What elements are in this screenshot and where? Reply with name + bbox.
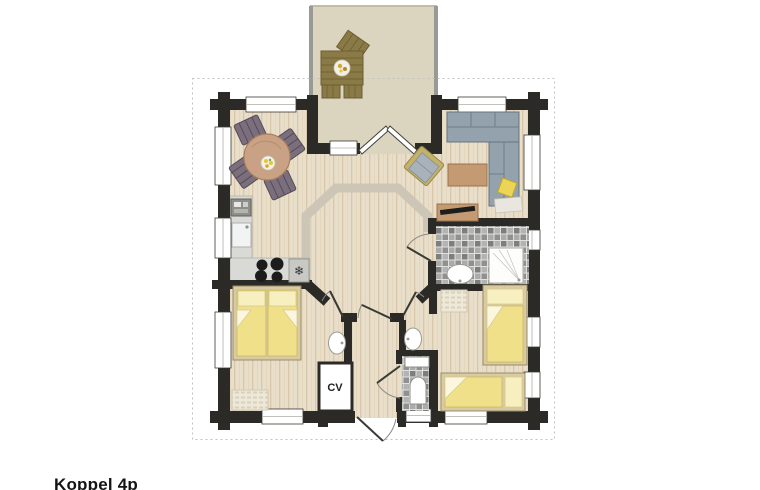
washbasin-bathroom [447, 265, 473, 284]
oven-icon [231, 199, 251, 216]
window-dining-left [215, 127, 231, 185]
terrace-chair-south-right [344, 85, 362, 98]
single-bed-vertical [483, 285, 527, 365]
terrace-rail-left [309, 6, 313, 99]
table-flowers [261, 156, 275, 170]
washbasin-bedroom1 [329, 332, 346, 354]
window-living-right [524, 135, 540, 190]
terrace-rail-right [434, 6, 438, 99]
floorplan-drawing: CV ❄ [0, 0, 760, 490]
plan-caption: Koppel 4p [54, 475, 138, 490]
washbasin-bedroom2 [405, 328, 422, 350]
cv-label: CV [327, 382, 343, 394]
single-bed-horizontal [441, 373, 525, 411]
double-bed [233, 286, 301, 360]
bathroom [436, 226, 529, 284]
shower [489, 248, 523, 283]
door-back-entrance [357, 417, 396, 441]
toilet-room [402, 356, 429, 411]
toilet-cistern [405, 357, 429, 367]
fridge: ❄ [289, 259, 309, 282]
terrace-chair-south-left [322, 85, 340, 98]
sofa-blanket [494, 197, 522, 213]
kitchen-sink [232, 223, 251, 247]
window-kitchen-left [215, 218, 231, 258]
toilet-bowl [410, 377, 426, 404]
window-entrance-front [330, 141, 357, 155]
window-bedroom1-bottom [262, 409, 303, 424]
window-bedroom2-right-lower [524, 372, 540, 398]
cv-closet: CV [319, 363, 352, 411]
window-bedroom1-left [215, 312, 231, 368]
terrace-table-plate [334, 60, 350, 76]
rug-bedroom1 [232, 390, 268, 410]
terrace-table [321, 51, 363, 85]
coffee-table [448, 164, 487, 186]
window-dining-top [246, 97, 296, 112]
rug-bedroom2 [441, 290, 467, 312]
window-living-top [458, 97, 506, 112]
tv-sideboard [437, 204, 478, 221]
floorplan-page: CV ❄ [0, 0, 760, 490]
snowflake-icon: ❄ [294, 264, 304, 278]
